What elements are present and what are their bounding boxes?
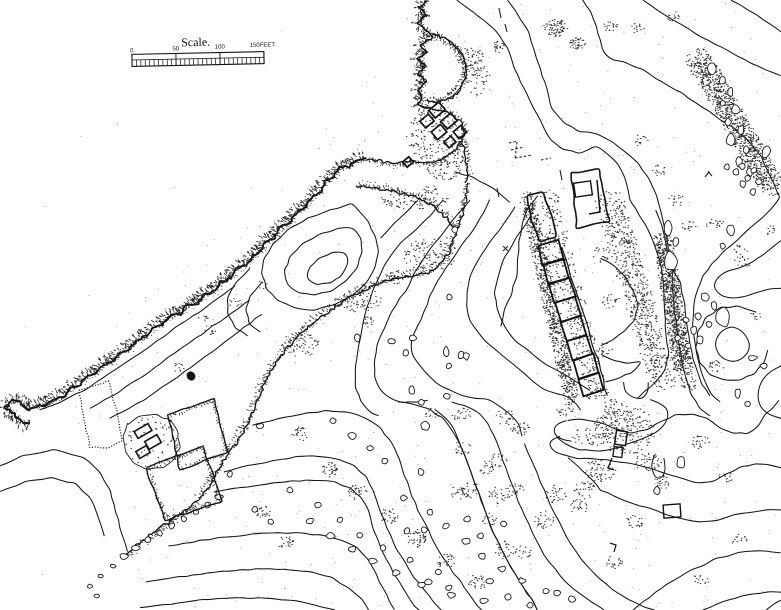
svg-text:Scale.: Scale.	[181, 35, 210, 50]
svg-text:150FEET.: 150FEET.	[250, 42, 277, 49]
svg-text:100: 100	[215, 44, 226, 50]
svg-text:50: 50	[172, 46, 179, 52]
